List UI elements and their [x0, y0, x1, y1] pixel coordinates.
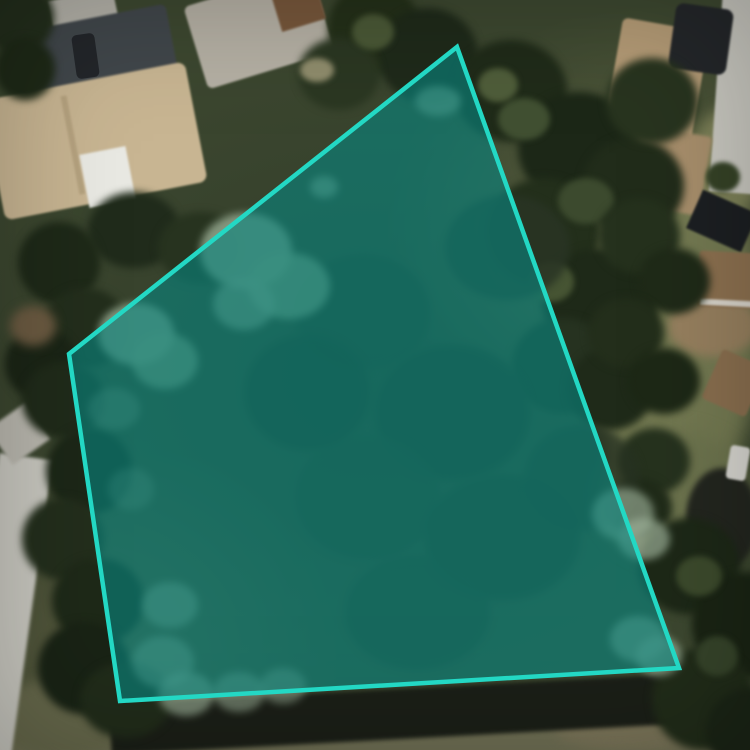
parcel-overlay	[0, 0, 750, 750]
map-canvas[interactable]	[0, 0, 750, 750]
parcel-polygon[interactable]	[69, 47, 679, 701]
